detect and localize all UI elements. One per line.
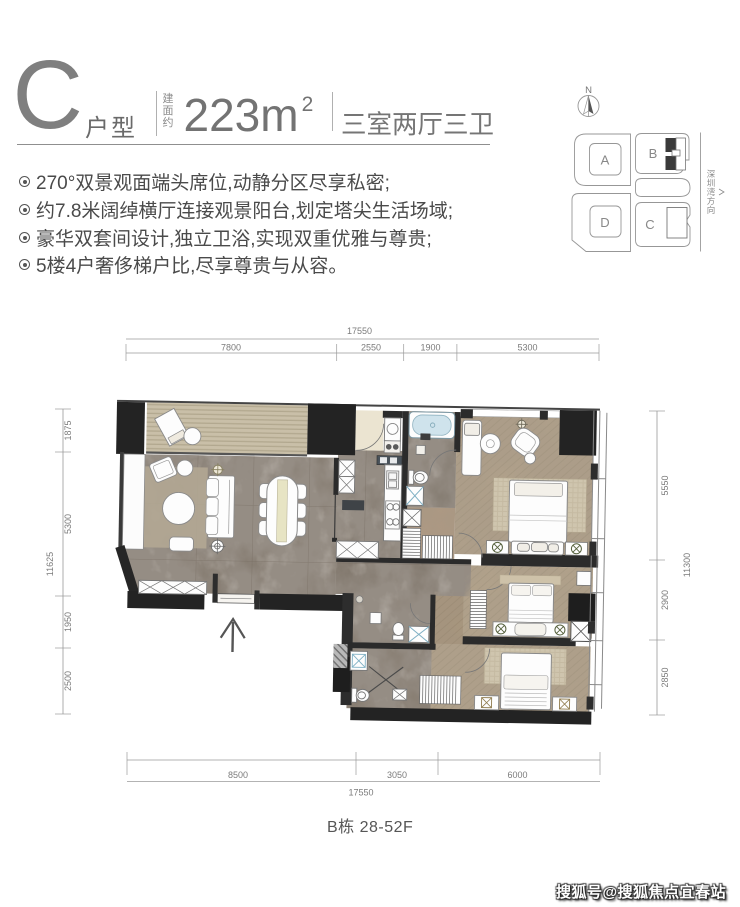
- svg-text:7800: 7800: [221, 343, 241, 353]
- svg-text:5300: 5300: [63, 514, 73, 534]
- svg-text:深圳湾方向: 深圳湾方向: [707, 169, 716, 215]
- svg-text:3050: 3050: [387, 770, 407, 780]
- svg-text:2850: 2850: [660, 667, 670, 687]
- svg-text:6000: 6000: [507, 770, 527, 780]
- svg-text:17550: 17550: [347, 326, 372, 336]
- svg-text:1900: 1900: [420, 343, 440, 353]
- svg-text:2550: 2550: [361, 343, 381, 353]
- svg-text:D: D: [600, 215, 609, 230]
- svg-text:A: A: [601, 153, 610, 168]
- svg-text:8500: 8500: [228, 770, 248, 780]
- svg-text:11300: 11300: [682, 553, 692, 577]
- svg-text:1875: 1875: [63, 420, 73, 440]
- svg-text:5550: 5550: [660, 475, 670, 495]
- svg-text:5300: 5300: [517, 343, 537, 353]
- svg-text:C: C: [645, 217, 654, 232]
- svg-text:2500: 2500: [63, 671, 73, 691]
- svg-text:17550: 17550: [348, 788, 373, 798]
- svg-text:B: B: [649, 146, 658, 161]
- svg-text:2900: 2900: [660, 590, 670, 610]
- svg-text:11625: 11625: [45, 552, 55, 576]
- svg-text:1950: 1950: [63, 612, 73, 632]
- svg-text:N: N: [585, 85, 592, 96]
